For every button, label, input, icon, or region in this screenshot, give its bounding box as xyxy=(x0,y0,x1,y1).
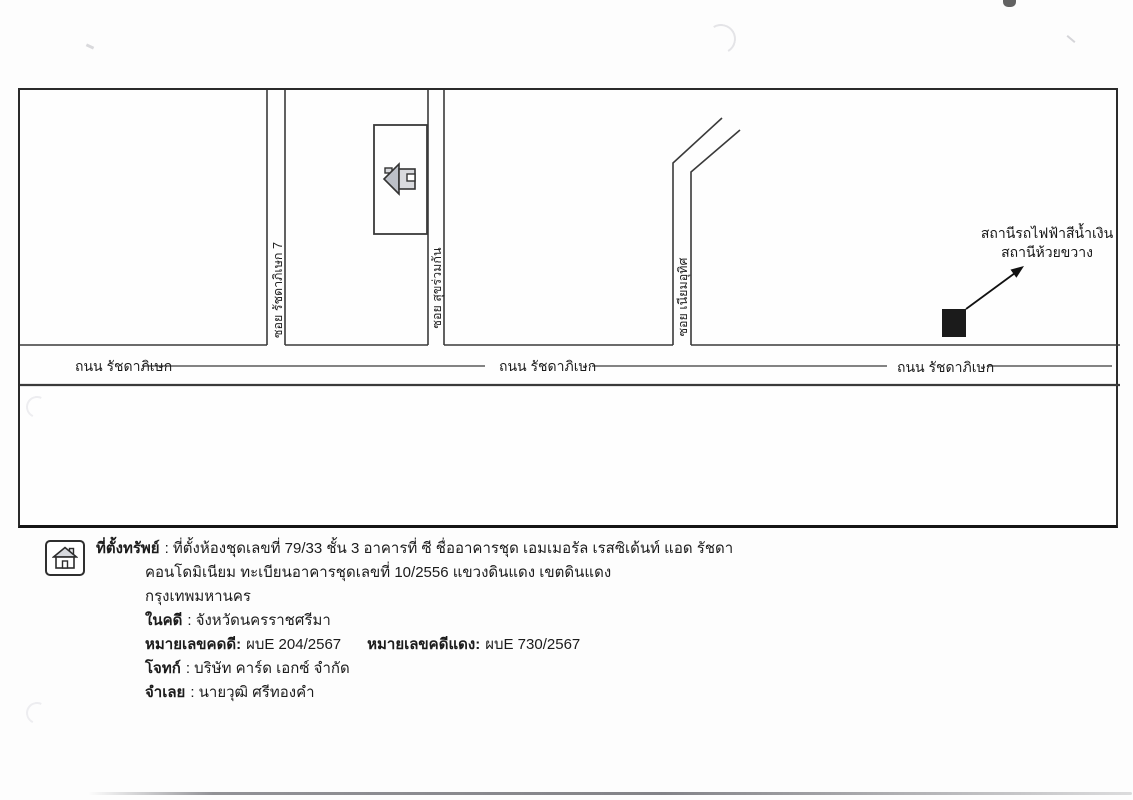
scan-artifact xyxy=(23,699,51,727)
soi-label-suk-ruam-kan: ซอย สุขร่วมกัน xyxy=(427,247,447,328)
red-case-label: หมายเลขคดีแดง: xyxy=(367,636,480,653)
station-annotation-line2: สถานีห้วยขวาง xyxy=(977,243,1117,262)
plaintiff-value: : บริษัท คาร์ด เอกซ์ จำกัด xyxy=(186,660,350,677)
info-line-plaintiff: โจทก์: บริษัท คาร์ด เอกซ์ จำกัด xyxy=(96,657,736,681)
black-case-label: หมายเลขคดดี: xyxy=(145,636,241,653)
street-line xyxy=(691,130,740,345)
court-case-value: : จังหวัดนครราชศรีมา xyxy=(187,612,330,629)
info-line-location2: คอนโดมิเนียม ทะเบียนอาคารชุดเลขที่ 10/25… xyxy=(96,561,736,585)
house-icon xyxy=(52,546,78,570)
location-map: ถนน รัชดาภิเษก ถนน รัชดาภิเษก ถนน รัชดาภ… xyxy=(18,88,1118,528)
road-label-center: ถนน รัชดาภิเษก xyxy=(499,356,596,378)
location-line1: : ที่ตั้งห้องชุดเลขที่ 79/33 ชั้น 3 อาคา… xyxy=(165,540,734,557)
scan-artifact xyxy=(1003,0,1016,7)
scan-artifact xyxy=(86,43,95,49)
red-case-value: ผบE 730/2567 xyxy=(485,636,580,653)
property-info: ที่ตั้งทรัพย์: ที่ตั้งห้องชุดเลขที่ 79/3… xyxy=(96,537,736,705)
station-annotation-line1: สถานีรถไฟฟ้าสีน้ำเงิน xyxy=(977,224,1117,243)
location-line2: คอนโดมิเนียม ทะเบียนอาคารชุดเลขที่ 10/25… xyxy=(145,564,611,581)
location-label: ที่ตั้งทรัพย์ xyxy=(96,540,160,557)
court-case-label: ในคดี xyxy=(145,612,182,629)
scan-artifact xyxy=(703,21,739,57)
info-line-defendant: จำเลย: นายวุฒิ ศรีทองคำ xyxy=(96,681,736,705)
defendant-label: จำเลย xyxy=(145,684,185,701)
road-label-left: ถนน รัชดาภิเษก xyxy=(75,356,172,378)
scan-artifact xyxy=(1067,35,1076,43)
info-line-case-numbers: หมายเลขคดดี:ผบE 204/2567หมายเลขคดีแดง:ผบ… xyxy=(96,633,736,657)
legend-house-box xyxy=(45,540,85,576)
black-square-marker xyxy=(942,309,966,337)
info-line-court-case: ในคดี: จังหวัดนครราชศรีมา xyxy=(96,609,736,633)
station-annotation: สถานีรถไฟฟ้าสีน้ำเงิน สถานีห้วยขวาง xyxy=(977,224,1117,262)
plaintiff-label: โจทก์ xyxy=(145,660,181,677)
info-line-location: ที่ตั้งทรัพย์: ที่ตั้งห้องชุดเลขที่ 79/3… xyxy=(96,537,736,561)
map-line-art xyxy=(20,90,1120,530)
arrow-icon xyxy=(966,266,1024,309)
location-line3: กรุงเทพมหานคร xyxy=(145,588,251,605)
black-case-value: ผบE 204/2567 xyxy=(246,636,341,653)
road-label-right: ถนน รัชดาภิเษก xyxy=(897,357,994,379)
info-line-location3: กรุงเทพมหานคร xyxy=(96,585,736,609)
soi-label-niam-uthit: ซอย เนียมอุทิศ xyxy=(673,258,693,337)
soi-label-ratchadaphisek-7: ซอย รัชดาภิเษก 7 xyxy=(268,242,288,338)
page-edge-shadow xyxy=(88,792,1132,795)
defendant-value: : นายวุฒิ ศรีทองคำ xyxy=(190,684,314,701)
